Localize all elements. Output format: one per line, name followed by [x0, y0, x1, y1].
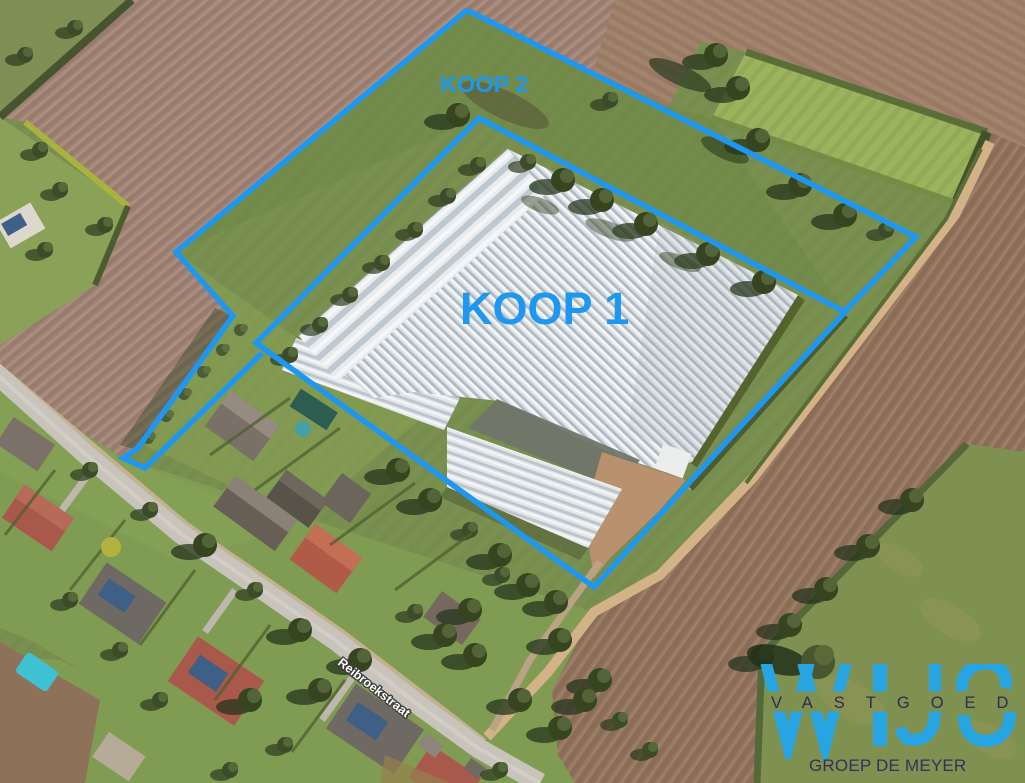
svg-text:KOOP 1: KOOP 1	[460, 283, 629, 334]
svg-text:VASTGOED: VASTGOED	[771, 694, 1025, 712]
svg-text:KOOP 2: KOOP 2	[440, 71, 528, 97]
svg-text:GROEP DE MEYER: GROEP DE MEYER	[809, 756, 966, 775]
